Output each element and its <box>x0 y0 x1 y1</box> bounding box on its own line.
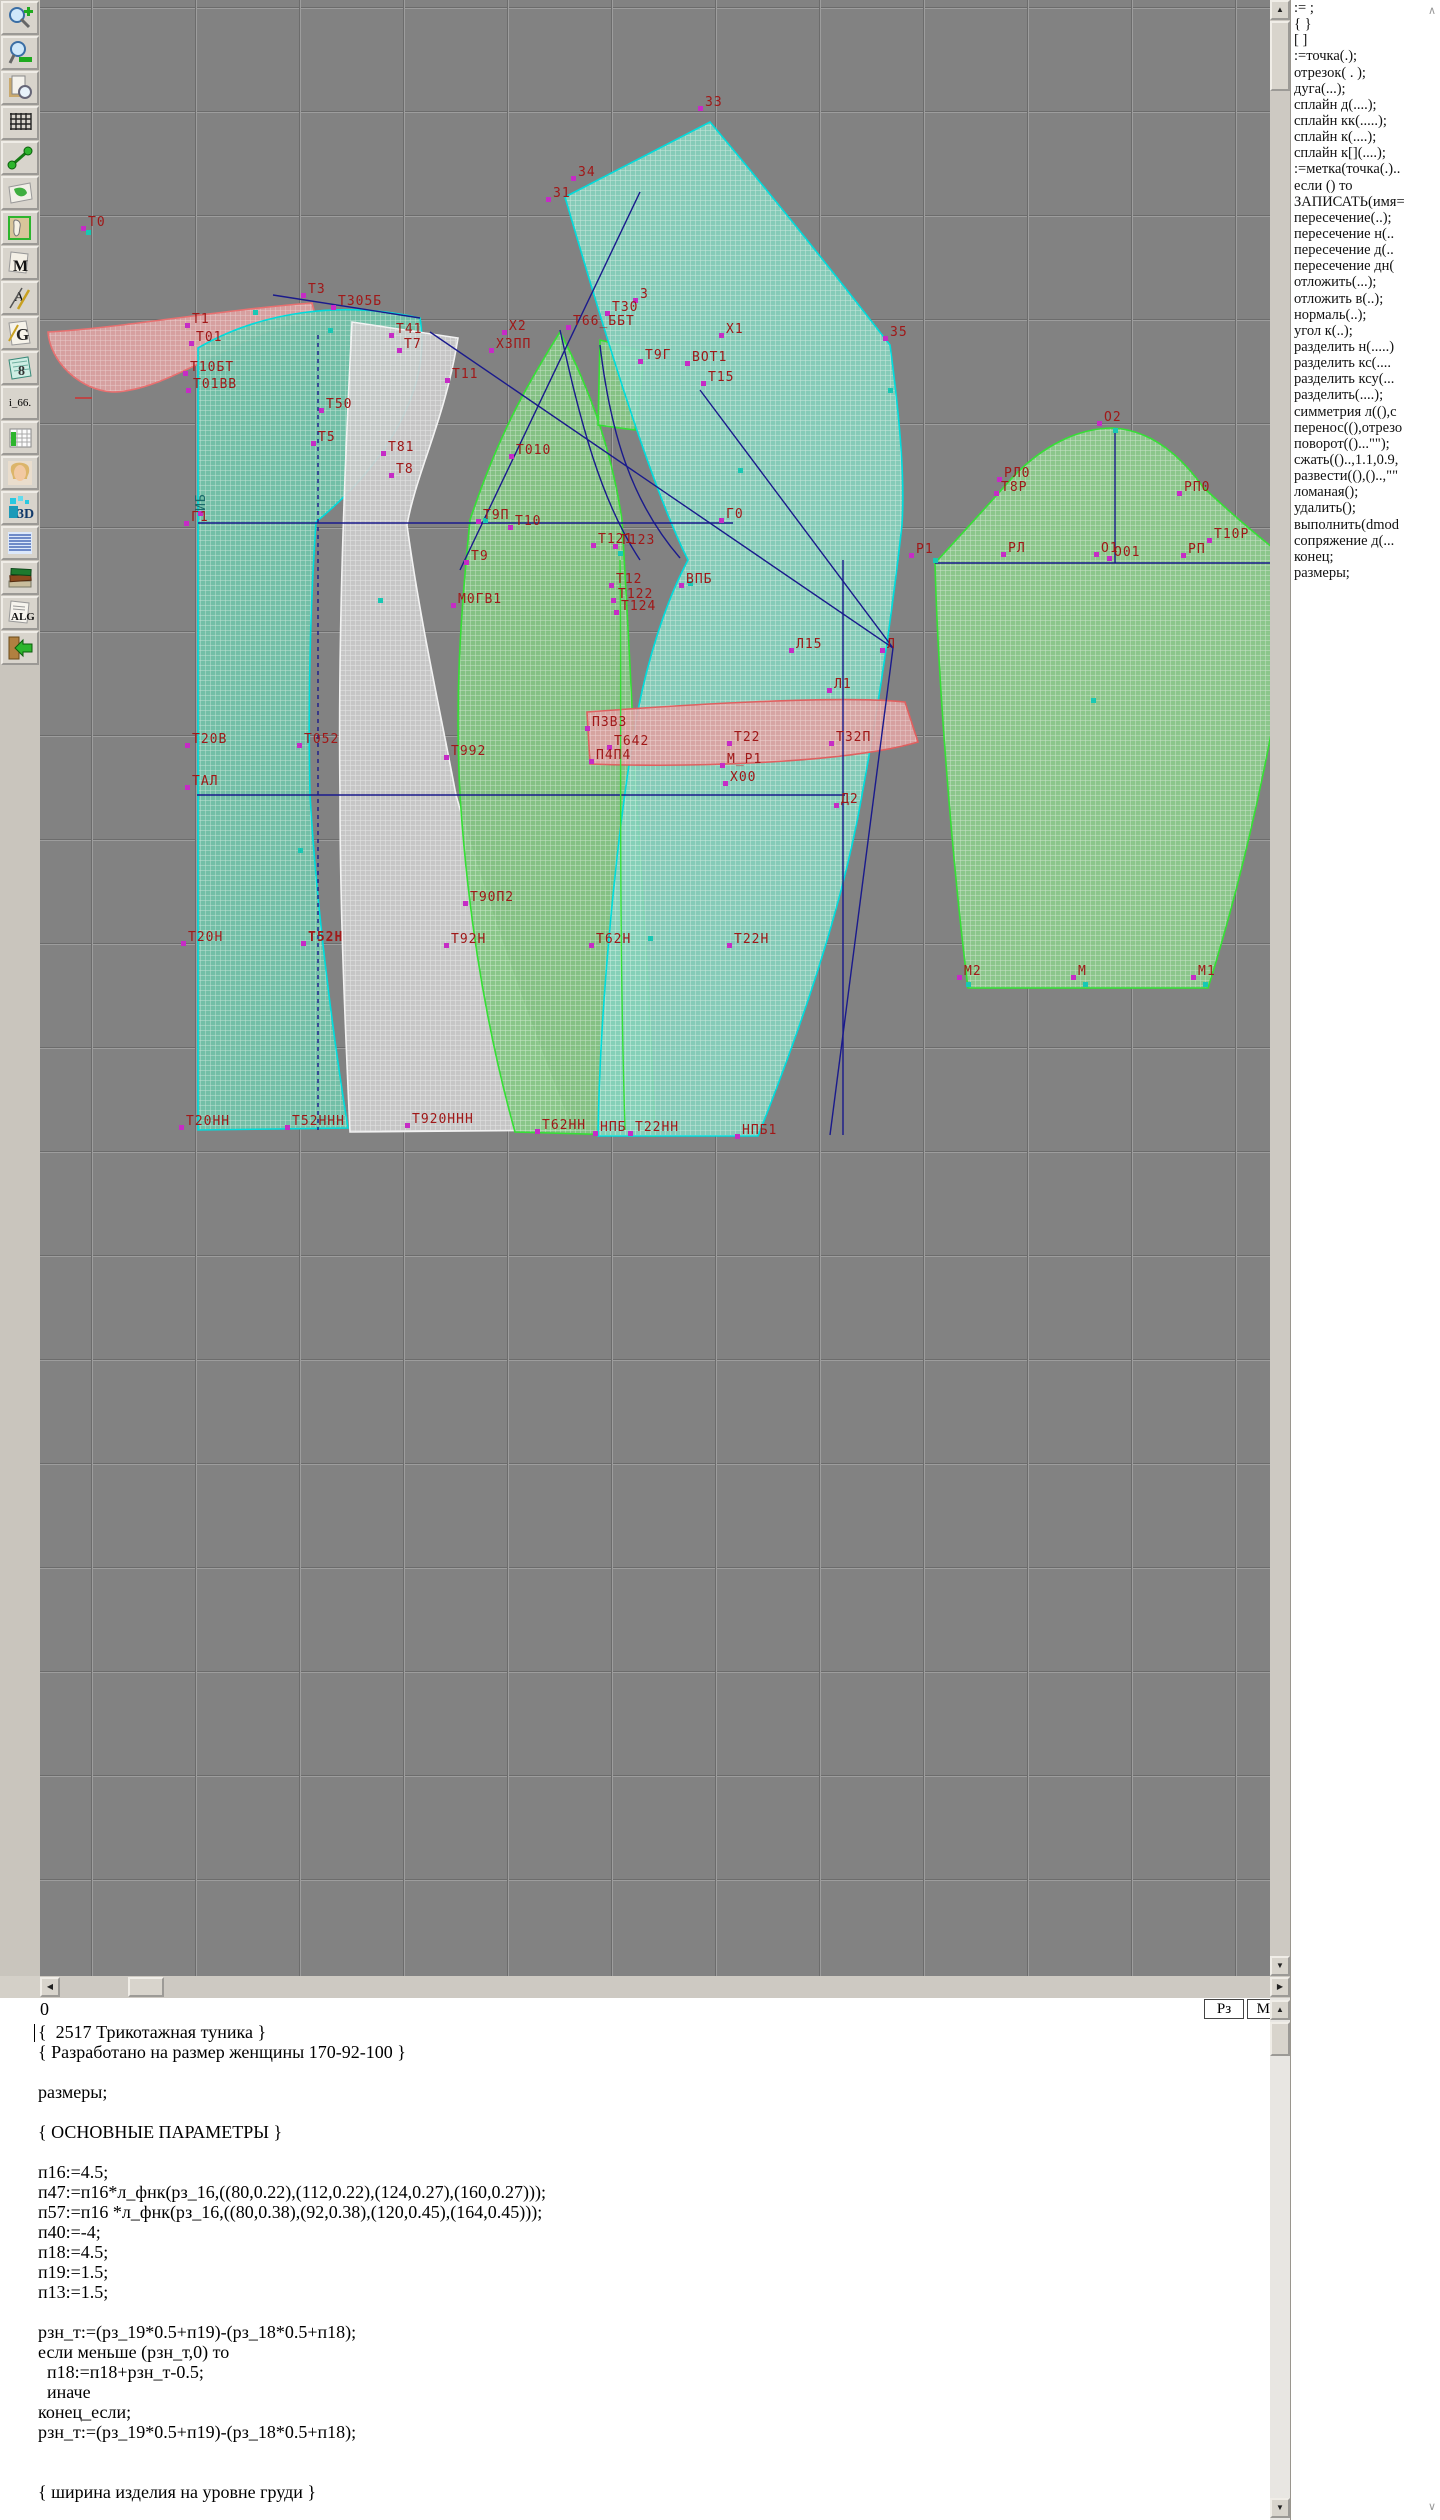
i66-label: i_66. <box>9 397 31 409</box>
point-label: Т3 <box>308 282 326 297</box>
point-marker <box>593 1131 598 1136</box>
point-marker <box>297 743 302 748</box>
code-line: { ОСНОВНЫЕ ПАРАМЕТРЫ } <box>38 2122 546 2142</box>
point-label: Т10БТ <box>190 360 234 375</box>
svg-text:3D: 3D <box>17 507 34 522</box>
code-line: п18:=п18+рзн_т-0.5; <box>38 2362 546 2382</box>
point-marker <box>405 1123 410 1128</box>
point-marker <box>720 763 725 768</box>
point-label: Т62Н <box>596 932 631 947</box>
point-marker-teal <box>1083 982 1088 987</box>
point-label: Х00 <box>730 770 756 785</box>
palette-command[interactable]: :=точка(.); <box>1291 48 1440 64</box>
code-line: конец_если; <box>38 2402 546 2422</box>
point-marker-teal <box>1091 698 1096 703</box>
point-marker <box>628 1131 633 1136</box>
editor-status-value: 0 <box>40 1999 49 2020</box>
ml-button[interactable]: Мл <box>1247 1999 1270 2019</box>
palette-command[interactable]: сплайн к(....); <box>1291 129 1440 145</box>
point-marker <box>1181 553 1186 558</box>
point-label: О01 <box>1114 545 1140 560</box>
palette-command[interactable]: поворот(()...""); <box>1291 436 1440 452</box>
point-marker-teal <box>253 310 258 315</box>
point-marker <box>727 943 732 948</box>
point-marker <box>489 348 494 353</box>
palette-command[interactable]: :=метка(точка(.).. <box>1291 161 1440 177</box>
marker-m-icon: M <box>6 249 34 277</box>
code-line: п19:=1.5; <box>38 2262 546 2282</box>
point-label: Т7 <box>404 337 422 352</box>
books-icon <box>6 564 34 592</box>
point-label: Т66_ББТ <box>573 314 635 329</box>
point-label: НПБ1 <box>742 1123 777 1138</box>
code-line <box>38 2442 546 2462</box>
point-label: Т10 <box>515 514 541 529</box>
point-marker <box>566 325 571 330</box>
point-label: Т22Н <box>734 932 769 947</box>
point-marker <box>381 451 386 456</box>
point-marker <box>464 560 469 565</box>
point-label: Р1 <box>916 542 934 557</box>
point-marker <box>445 378 450 383</box>
point-label: Х1 <box>726 322 744 337</box>
point-marker <box>585 726 590 731</box>
canvas-vscroll-thumb[interactable] <box>1270 21 1290 91</box>
canvas-scroll-right-icon[interactable]: ▶ <box>1270 1977 1290 1997</box>
point-label: Т90П2 <box>470 890 514 905</box>
point-label: Т15 <box>708 370 734 385</box>
point-label: Т0 <box>88 215 106 230</box>
code-line: размеры; <box>38 2082 546 2102</box>
canvas-hscrollbar[interactable]: ◀ ▶ <box>40 1976 1290 1998</box>
point-label: М2 <box>964 964 982 979</box>
palette-command[interactable]: := ; <box>1291 0 1440 16</box>
svg-text:G: G <box>16 325 29 344</box>
point-marker-teal <box>618 551 623 556</box>
palette-command[interactable]: разделить н(.....) <box>1291 339 1440 355</box>
table-button[interactable] <box>1 421 39 455</box>
point-marker <box>723 781 728 786</box>
pattern-sheet-button[interactable] <box>1 211 39 245</box>
point-marker <box>701 381 706 386</box>
calculator-button[interactable]: 8 <box>1 351 39 385</box>
point-marker-teal <box>86 230 91 235</box>
point-label: Т10Р <box>1214 527 1249 542</box>
code-line: п16:=4.5; <box>38 2162 546 2182</box>
marker-m-button[interactable]: M <box>1 246 39 280</box>
point-label: Т123 <box>620 533 655 548</box>
point-marker <box>611 598 616 603</box>
pattern-sheet-icon <box>6 214 34 242</box>
point-marker <box>185 743 190 748</box>
point-marker <box>609 583 614 588</box>
code-line: если меньше (рзн_т,0) то <box>38 2342 546 2362</box>
palette-command[interactable]: разделить(....); <box>1291 387 1440 403</box>
toolbar: M A G 8 i_66. 3D ALG <box>0 0 40 1976</box>
palette-command[interactable]: [ ] <box>1291 32 1440 48</box>
point-marker <box>727 741 732 746</box>
exit-icon <box>6 634 34 662</box>
graphics-button[interactable]: G <box>1 316 39 350</box>
point-marker <box>789 648 794 653</box>
point-label: 34 <box>578 165 596 180</box>
palette-command[interactable]: отрезок( . ); <box>1291 65 1440 81</box>
code-line: иначе <box>38 2382 546 2402</box>
point-marker <box>880 648 885 653</box>
point-marker <box>389 333 394 338</box>
code-editor[interactable]: 0 Рз Мл { 2517 Трикотажная туника }{ Раз… <box>0 1998 1270 2520</box>
point-label: Л <box>887 637 896 652</box>
canvas-scroll-down-icon[interactable]: ▼ <box>1270 1956 1290 1976</box>
point-label: Т52ННН <box>292 1114 345 1129</box>
point-label: Т9Г <box>645 348 671 363</box>
point-label: Т20НН <box>186 1114 230 1129</box>
point-label: 35 <box>890 325 908 340</box>
editor-scroll-up-icon[interactable]: ▲ <box>1270 2000 1290 2020</box>
editor-scroll-down-icon[interactable]: ▼ <box>1270 2498 1290 2518</box>
palette-command[interactable]: разделить кс(.... <box>1291 355 1440 371</box>
svg-text:ALG: ALG <box>11 611 34 623</box>
point-label: НПБ <box>600 1120 626 1135</box>
code-line: { Разработано на размер женщины 170-92-1… <box>38 2042 546 2062</box>
point-label: ВОТ1 <box>692 350 727 365</box>
i66-button[interactable]: i_66. <box>1 386 39 420</box>
point-marker <box>463 901 468 906</box>
grid-icon <box>6 109 34 137</box>
point-marker <box>181 941 186 946</box>
annotation-icon: A <box>6 284 34 312</box>
point-label: Л1 <box>834 677 852 692</box>
point-marker <box>185 785 190 790</box>
point-marker <box>508 525 513 530</box>
point-marker <box>719 518 724 523</box>
point-label: Т920ННН <box>412 1112 474 1127</box>
palette-command[interactable]: разделить ксу(... <box>1291 371 1440 387</box>
point-label: Д2 <box>841 792 859 807</box>
palette-command[interactable]: пересечение(..); <box>1291 210 1440 226</box>
point-label: Т305Б <box>338 294 382 309</box>
point-marker <box>444 755 449 760</box>
palette-command[interactable]: сплайн кк(.....); <box>1291 113 1440 129</box>
point-label: Т9 <box>471 549 489 564</box>
preview-button[interactable] <box>1 71 39 105</box>
code-line <box>38 2062 546 2082</box>
pattern-drawing: Т033343135Т1Т01Т10БТТ01ВВТ3Т305БТ41Т7Т50… <box>40 0 1270 1976</box>
code-line: { ширина изделия на уровне груди } <box>38 2482 546 2502</box>
point-marker <box>1071 975 1076 980</box>
point-marker <box>685 361 690 366</box>
point-marker <box>994 491 999 496</box>
point-marker <box>183 371 188 376</box>
point-marker <box>829 741 834 746</box>
code-lines: { 2517 Трикотажная туника }{ Разработано… <box>38 2022 546 2502</box>
editor-vscrollbar[interactable]: ▲ ▼ <box>1270 1998 1290 2520</box>
code-line: п47:=п16*л_фнк(рз_16,((80,0.22),(112,0.2… <box>38 2182 546 2202</box>
palette-command[interactable]: отложить в(..); <box>1291 291 1440 307</box>
grid-button[interactable] <box>1 106 39 140</box>
zoom-in-button[interactable] <box>1 1 39 35</box>
point-marker <box>444 943 449 948</box>
point-marker <box>589 943 594 948</box>
point-label: Т20В <box>192 732 227 747</box>
point-label: М1 <box>1198 964 1216 979</box>
books-button[interactable] <box>1 561 39 595</box>
annotation-button[interactable]: A <box>1 281 39 315</box>
point-marker <box>719 333 724 338</box>
point-label: Х3ПП <box>496 337 531 352</box>
point-label: Т12 <box>616 572 642 587</box>
code-line: п13:=1.5; <box>38 2282 546 2302</box>
point-label: Т010 <box>516 443 551 458</box>
svg-text:M: M <box>13 258 28 275</box>
point-marker <box>571 176 576 181</box>
point-marker-teal <box>298 848 303 853</box>
algorithms-icon: ALG <box>6 599 34 627</box>
palette-command[interactable]: развести((),()..,"" <box>1291 468 1440 484</box>
point-label: Т30 <box>612 300 638 315</box>
canvas-scroll-up-icon[interactable]: ▲ <box>1270 0 1290 20</box>
palette-command[interactable]: пересечение д(.. <box>1291 242 1440 258</box>
code-line <box>38 2302 546 2322</box>
point-marker <box>189 341 194 346</box>
palette-scroll-down-icon[interactable]: ∨ <box>1428 2500 1436 2513</box>
point-marker <box>451 603 456 608</box>
point-marker <box>1001 552 1006 557</box>
point-marker <box>834 803 839 808</box>
point-marker <box>589 759 594 764</box>
point-marker <box>1094 552 1099 557</box>
point-label: П3В3 <box>592 715 627 730</box>
code-line: п18:=4.5; <box>38 2242 546 2262</box>
palette-command[interactable]: угол к(..); <box>1291 323 1440 339</box>
point-marker <box>535 1129 540 1134</box>
point-label: Т642 <box>614 734 649 749</box>
point-label: РП <box>1188 542 1206 557</box>
point-label: Г1 <box>191 510 209 525</box>
palette-command[interactable]: выполнить(dmod <box>1291 517 1440 533</box>
code-line <box>38 2462 546 2482</box>
point-label: ТАЛ <box>192 774 218 789</box>
palette-command[interactable]: нормаль(..); <box>1291 307 1440 323</box>
point-marker-teal <box>378 598 383 603</box>
point-label: 33 <box>705 95 723 110</box>
point-label: Л15 <box>796 637 822 652</box>
text-caret <box>34 2024 35 2042</box>
view3d-icon: 3D <box>6 494 34 522</box>
point-marker <box>184 521 189 526</box>
palette-command[interactable]: конец; <box>1291 549 1440 565</box>
palette-command[interactable]: перенос((),отрезо <box>1291 420 1440 436</box>
point-label: 31 <box>553 186 571 201</box>
exit-button[interactable] <box>1 631 39 665</box>
point-marker <box>638 359 643 364</box>
code-line: рзн_т:=(рз_19*0.5+п19)-(рз_18*0.5+п18); <box>38 2422 546 2442</box>
code-line: рзн_т:=(рз_19*0.5+п19)-(рз_18*0.5+п18); <box>38 2322 546 2342</box>
point-label: Т124 <box>621 599 656 614</box>
command-palette: ∧ := ;{ }[ ]:=точка(.);отрезок( . );дуга… <box>1290 0 1440 2520</box>
point-label: РЛ <box>1008 541 1026 556</box>
point-label: Т01 <box>196 330 222 345</box>
point-label: Т41 <box>396 322 422 337</box>
palette-scroll-up-icon[interactable]: ∧ <box>1428 4 1436 17</box>
point-marker <box>957 975 962 980</box>
palette-command[interactable]: пересечение н(.. <box>1291 226 1440 242</box>
point-marker-teal <box>1203 982 1208 987</box>
point-marker <box>698 106 703 111</box>
photo-icon <box>6 459 34 487</box>
point-label: Х2 <box>509 319 527 334</box>
point-marker <box>81 226 86 231</box>
point-marker <box>546 197 551 202</box>
point-marker <box>509 454 514 459</box>
svg-text:8: 8 <box>18 364 25 379</box>
point-marker-teal <box>933 558 938 563</box>
point-marker <box>1097 421 1102 426</box>
point-label: Т5 <box>318 430 336 445</box>
point-marker-teal <box>648 936 653 941</box>
point-label: Т92Н <box>451 932 486 947</box>
pattern-piece-sleeve[interactable] <box>935 428 1270 988</box>
rz-button[interactable]: Рз <box>1204 1999 1244 2019</box>
point-marker <box>301 941 306 946</box>
point-label: РП0 <box>1184 480 1210 495</box>
point-label: Т1 <box>192 312 210 327</box>
layout-map-icon <box>6 179 34 207</box>
palette-command[interactable]: { } <box>1291 16 1440 32</box>
point-label: ВПБ <box>686 572 712 587</box>
palette-command[interactable]: сплайн к[](....); <box>1291 145 1440 161</box>
point-label: 3 <box>640 287 649 302</box>
point-marker <box>827 688 832 693</box>
palette-command[interactable]: пересечение дн( <box>1291 258 1440 274</box>
point-marker <box>319 408 324 413</box>
point-marker <box>389 473 394 478</box>
code-line: { 2517 Трикотажная туника } <box>38 2022 546 2042</box>
palette-command[interactable]: дуга(...); <box>1291 81 1440 97</box>
point-label: Т11 <box>452 367 478 382</box>
canvas-scroll-left-icon[interactable]: ◀ <box>40 1977 60 1997</box>
photo-button[interactable] <box>1 456 39 490</box>
point-label: Т52Н <box>308 930 343 945</box>
point-marker <box>1207 538 1212 543</box>
point-label: Т62НН <box>542 1118 586 1133</box>
palette-command[interactable]: ЗАПИСАТЬ(имя= <box>1291 194 1440 210</box>
point-marker <box>679 583 684 588</box>
point-label: Г0 <box>726 507 744 522</box>
point-marker-teal <box>738 468 743 473</box>
point-marker <box>301 293 306 298</box>
point-marker <box>1191 975 1196 980</box>
point-label: ИБ <box>194 493 209 511</box>
canvas-vscrollbar[interactable]: ▲ ▼ <box>1270 0 1290 1976</box>
measure-button[interactable] <box>1 141 39 175</box>
zoom-in-icon <box>6 4 34 32</box>
point-marker-teal <box>966 982 971 987</box>
point-marker <box>591 543 596 548</box>
point-label: Т052 <box>304 732 339 747</box>
pattern-canvas[interactable]: Т033343135Т1Т01Т10БТТ01ВВТ3Т305БТ41Т7Т50… <box>40 0 1270 1976</box>
layout-map-button[interactable] <box>1 176 39 210</box>
point-marker-teal <box>1113 428 1118 433</box>
point-label: Т81 <box>388 440 414 455</box>
point-marker <box>397 348 402 353</box>
zoom-out-icon <box>6 39 34 67</box>
point-label: Т9П <box>483 508 509 523</box>
point-label: Т8Р <box>1001 480 1027 495</box>
code-line <box>38 2102 546 2122</box>
table-icon <box>6 424 34 452</box>
palette-command[interactable]: сжать(()..,1.1,0.9, <box>1291 452 1440 468</box>
point-label: О2 <box>1104 410 1122 425</box>
palette-command[interactable]: ломаная(); <box>1291 484 1440 500</box>
point-marker <box>735 1134 740 1139</box>
algorithms-button[interactable]: ALG <box>1 596 39 630</box>
measure-icon <box>6 144 34 172</box>
palette-command[interactable]: сплайн д(....); <box>1291 97 1440 113</box>
point-marker-teal <box>888 388 893 393</box>
point-label: Т992 <box>451 744 486 759</box>
palette-command[interactable]: отложить(...); <box>1291 274 1440 290</box>
code-line: п57:=п16 *л_фнк(рз_16,((80,0.38),(92,0.3… <box>38 2202 546 2222</box>
graphics-icon: G <box>6 319 34 347</box>
preview-icon <box>6 74 34 102</box>
palette-command[interactable]: удалить(); <box>1291 500 1440 516</box>
point-label: Т22НН <box>635 1120 679 1135</box>
point-marker <box>1107 556 1112 561</box>
point-marker <box>614 610 619 615</box>
point-label: М <box>1078 964 1087 979</box>
point-label: Т8 <box>396 462 414 477</box>
point-marker <box>1177 491 1182 496</box>
point-marker <box>311 441 316 446</box>
point-label: Т20Н <box>188 930 223 945</box>
point-label: Т01ВВ <box>193 377 237 392</box>
point-label: Т32П <box>836 730 871 745</box>
zoom-out-button[interactable] <box>1 36 39 70</box>
point-marker <box>185 323 190 328</box>
point-marker <box>179 1125 184 1130</box>
calculator-icon: 8 <box>6 354 34 382</box>
point-label: РЛ0 <box>1004 466 1030 481</box>
point-marker <box>186 388 191 393</box>
text-list-icon <box>6 529 34 557</box>
point-marker <box>909 553 914 558</box>
point-label: Т22 <box>734 730 760 745</box>
palette-command[interactable]: сопряжение д(... <box>1291 533 1440 549</box>
point-marker <box>331 305 336 310</box>
palette-command[interactable]: если () то <box>1291 178 1440 194</box>
point-label: М0ГВ1 <box>458 592 502 607</box>
point-label: П4П4 <box>596 748 631 763</box>
code-line: п40:=-4; <box>38 2222 546 2242</box>
code-line <box>38 2142 546 2162</box>
editor-vscroll-thumb[interactable] <box>1270 2022 1290 2056</box>
point-marker <box>883 336 888 341</box>
palette-command[interactable]: симметрия л((),с <box>1291 404 1440 420</box>
view3d-button[interactable]: 3D <box>1 491 39 525</box>
canvas-hscroll-thumb[interactable] <box>128 1977 164 1997</box>
palette-command[interactable]: размеры; <box>1291 565 1440 581</box>
point-label: М_Р1 <box>727 752 762 767</box>
point-label: Т50 <box>326 397 352 412</box>
point-marker <box>476 519 481 524</box>
text-list-button[interactable] <box>1 526 39 560</box>
point-marker-teal <box>328 328 333 333</box>
editor-header: 0 Рз Мл <box>0 1998 1270 2021</box>
point-marker <box>502 330 507 335</box>
point-marker <box>285 1125 290 1130</box>
